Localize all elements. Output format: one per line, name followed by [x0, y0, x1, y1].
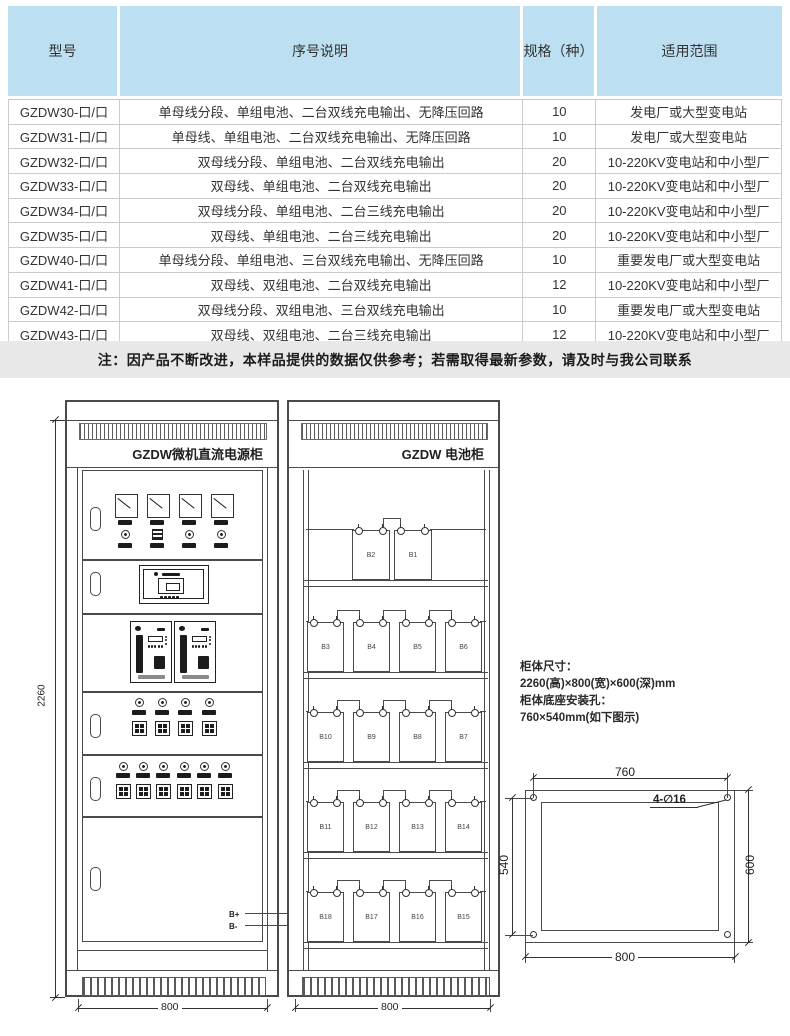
lamp-tag — [116, 773, 130, 778]
table-row: GZDW34-口/口双母线分段、单组电池、二台三线充电输出2010-220KV变… — [9, 199, 782, 224]
module-block — [198, 656, 209, 669]
breaker-dot — [221, 787, 225, 791]
monitor-button — [164, 596, 167, 599]
battery-terminal — [402, 709, 410, 717]
battery-shelf — [303, 672, 488, 679]
table-row: GZDW30-口/口单母线分段、单组电池、二台双线充电输出、无降压回路10发电厂… — [9, 100, 782, 125]
battery-shelf — [303, 580, 488, 587]
door-handle — [90, 507, 101, 531]
cabinet-line — [77, 950, 267, 951]
table-cell: 双母线、双组电池、二台双线充电输出 — [120, 273, 523, 297]
battery-terminal — [471, 709, 479, 717]
table-cell: GZDW35-口/口 — [9, 223, 120, 247]
meter-needle — [213, 498, 226, 509]
meter-needle — [149, 498, 162, 509]
breaker-dot — [164, 792, 168, 796]
breaker-dot — [144, 792, 148, 796]
table-cell: 重要发电厂或大型变电站 — [596, 248, 782, 272]
battery-cell: B1 — [394, 530, 432, 580]
breaker-dot — [159, 787, 163, 791]
lamp-tag — [182, 543, 196, 548]
monitor-bezel — [139, 565, 209, 604]
module-button — [192, 645, 194, 648]
cabinet-size-title: 柜体尺寸： — [520, 658, 578, 674]
battery-terminal — [421, 527, 429, 535]
table-cell: 重要发电厂或大型变电站 — [596, 298, 782, 322]
module-button — [154, 645, 156, 648]
indicator-lamp-icon — [158, 698, 167, 707]
battery-cell: B18 — [307, 892, 344, 942]
breaker-dot — [124, 792, 128, 796]
bridge-wire — [337, 790, 360, 799]
breaker-dot — [186, 729, 190, 733]
indicator-lamp-icon — [119, 762, 128, 771]
breaker-dot — [140, 729, 144, 733]
mounting-hole-icon — [724, 931, 731, 938]
breaker-dot — [180, 787, 184, 791]
cabinet-title: GZDW 电池柜 — [289, 440, 498, 468]
monitor-button — [176, 596, 179, 599]
battery-terminal — [333, 889, 341, 897]
witness-line — [525, 943, 526, 963]
rail-link-wire — [306, 529, 354, 530]
battery-cell: B5 — [399, 622, 436, 672]
module-dash — [201, 628, 209, 631]
analog-meter-icon — [211, 494, 234, 518]
rail-link-wire — [306, 801, 309, 802]
analog-meter-icon — [115, 494, 138, 518]
table-cell: 20 — [523, 199, 596, 223]
module-block — [154, 656, 165, 669]
table-cell: 20 — [523, 174, 596, 198]
note-text: 注：因产品不断改进，本样品提供的数据仅供参考；若需取得最新参数，请及时与我公司联… — [98, 350, 693, 370]
lamp-tag — [178, 710, 192, 715]
battery-terminal — [355, 527, 363, 535]
indicator-lamp-icon — [135, 698, 144, 707]
battery-terminal — [425, 799, 433, 807]
breaker-dot — [205, 729, 209, 733]
lamp-tag — [155, 710, 169, 715]
battery-cell: B3 — [307, 622, 344, 672]
breaker-dot — [205, 724, 209, 728]
bridge-wire — [429, 790, 452, 799]
battery-shelf — [303, 942, 488, 949]
battery-terminal — [425, 889, 433, 897]
rail-link-wire — [306, 711, 309, 712]
breaker-dot — [139, 792, 143, 796]
bridge-wire — [429, 880, 452, 889]
analog-meter-icon — [179, 494, 202, 518]
module-led — [209, 643, 211, 645]
table-cell: GZDW30-口/口 — [9, 100, 120, 124]
battery-cell: B7 — [445, 712, 482, 762]
cabinet-line — [289, 420, 498, 421]
battery-terminal — [425, 709, 433, 717]
breaker-icon — [218, 784, 233, 799]
table-cell: 双母线分段、单组电池、二台三线充电输出 — [120, 199, 523, 223]
breaker-dot — [185, 787, 189, 791]
battery-cell: B4 — [353, 622, 390, 672]
indicator-lamp-icon — [181, 698, 190, 707]
battery-terminal — [379, 889, 387, 897]
breaker-dot — [210, 724, 214, 728]
cabinet-title-text: GZDW微机直流电源柜 — [132, 444, 263, 463]
bridge-wire — [383, 518, 401, 527]
module-button — [151, 645, 153, 648]
rail-link-wire — [480, 891, 486, 892]
lamp-tag — [218, 773, 232, 778]
battery-terminal — [356, 619, 364, 627]
left-width-dimension-label: 800 — [158, 1001, 182, 1013]
module-led — [165, 639, 167, 641]
hole-spec-label: 4-∅16 — [650, 792, 689, 806]
rail-link-wire — [430, 529, 486, 530]
cabinet-line — [67, 420, 277, 421]
door-handle — [90, 572, 101, 596]
breaker-dot — [158, 729, 162, 733]
indicator-lamp-icon — [200, 762, 209, 771]
breaker-dot — [135, 724, 139, 728]
top-vent-grille-icon — [301, 423, 488, 440]
bridge-wire — [337, 700, 360, 709]
witness-line — [50, 997, 65, 998]
module-button — [198, 645, 200, 648]
module-led — [209, 636, 211, 638]
battery-cell: B14 — [445, 802, 482, 852]
monitor-button — [168, 596, 171, 599]
bridge-wire — [337, 610, 360, 619]
table-row: GZDW32-口/口双母线分段、单组电池、二台双线充电输出2010-220KV变… — [9, 149, 782, 174]
rail-link-wire — [480, 711, 486, 712]
meter-tag — [150, 520, 164, 525]
lamp-tag — [197, 773, 211, 778]
table-cell: 20 — [523, 149, 596, 173]
top-vent-grille-icon — [79, 423, 267, 440]
table-cell: 单母线分段、单组电池、二台双线充电输出、无降压回路 — [120, 100, 523, 124]
page: 型号序号说明规格（种）适用范围 GZDW30-口/口单母线分段、单组电池、二台双… — [0, 0, 790, 1036]
base-plan-inner-rect — [541, 802, 719, 931]
module-heatsink — [180, 635, 187, 673]
table-cell: 12 — [523, 273, 596, 297]
analog-meter-icon — [147, 494, 170, 518]
battery-cell: B8 — [399, 712, 436, 762]
right-width-dimension-label: 800 — [378, 1001, 402, 1013]
spec-table: 型号序号说明规格（种）适用范围 GZDW30-口/口单母线分段、单组电池、二台双… — [8, 6, 782, 347]
bridge-wire — [383, 610, 406, 619]
table-cell: 10 — [523, 100, 596, 124]
battery-terminal — [402, 799, 410, 807]
breaker-dot — [200, 792, 204, 796]
hole-height-label: 540 — [497, 852, 511, 878]
height-dimension-label: 2260 — [37, 681, 48, 709]
indicator-lamp-icon — [217, 530, 226, 539]
battery-cell: B13 — [399, 802, 436, 852]
breaker-icon — [136, 784, 151, 799]
battery-terminal — [397, 527, 405, 535]
indicator-lamp-icon — [221, 762, 230, 771]
breaker-dot — [226, 792, 230, 796]
table-cell: 10-220KV变电站和中小型厂 — [596, 174, 782, 198]
column-header: 型号 — [8, 6, 117, 96]
breaker-icon — [178, 721, 193, 736]
battery-terminal — [310, 709, 318, 717]
door-handle — [90, 714, 101, 738]
meter-needle — [181, 498, 194, 509]
rail-link-wire — [480, 621, 486, 622]
hole-width-label: 760 — [612, 765, 638, 779]
table-cell: GZDW40-口/口 — [9, 248, 120, 272]
rail-link-wire — [480, 801, 486, 802]
column-header: 适用范围 — [597, 6, 782, 96]
battery-terminal — [333, 799, 341, 807]
battery-cabinet: GZDW 电池柜 B2B1B3B4B5B6B10B9B8B7B11B12B13B… — [287, 400, 500, 997]
module-led — [209, 639, 211, 641]
module-display — [148, 636, 163, 642]
table-cell: 10 — [523, 125, 596, 149]
breaker-dot — [144, 787, 148, 791]
cabinet-title: GZDW微机直流电源柜 — [67, 440, 277, 468]
battery-terminal — [379, 709, 387, 717]
witness-line — [735, 942, 753, 943]
battery-terminal — [379, 799, 387, 807]
breaker-dot — [180, 792, 184, 796]
breaker-icon — [177, 784, 192, 799]
indicator-lamp-icon — [121, 530, 130, 539]
battery-terminal — [356, 889, 364, 897]
module-rail — [138, 675, 165, 679]
rail-link-wire — [306, 621, 309, 622]
battery-terminal — [310, 619, 318, 627]
breaker-dot — [119, 787, 123, 791]
breaker-dot — [163, 729, 167, 733]
charger-module — [174, 621, 216, 683]
bridge-wire — [383, 880, 406, 889]
module-button — [195, 645, 197, 648]
meter-tag — [118, 520, 132, 525]
table-cell: 10 — [523, 298, 596, 322]
bridge-wire — [337, 880, 360, 889]
battery-terminal — [448, 889, 456, 897]
battery-cell: B2 — [352, 530, 390, 580]
lamp-tag — [150, 543, 164, 548]
breaker-icon — [132, 721, 147, 736]
lamp-tag — [214, 543, 228, 548]
witness-line — [735, 790, 753, 791]
bottom-vent-grille-icon — [302, 977, 490, 996]
breaker-icon — [197, 784, 212, 799]
dimension-line-540 — [512, 798, 513, 935]
cabinet-size-value: 2260(高)×800(宽)×600(深)mm — [520, 675, 675, 691]
breaker-dot — [221, 792, 225, 796]
door-frame-line — [77, 467, 78, 970]
battery-terminal — [448, 709, 456, 717]
table-cell: GZDW41-口/口 — [9, 273, 120, 297]
table-row: GZDW40-口/口单母线分段、单组电池、三台双线充电输出、无降压回路10重要发… — [9, 248, 782, 273]
breaker-dot — [124, 787, 128, 791]
table-cell: 发电厂或大型变电站 — [596, 100, 782, 124]
battery-cell: B10 — [307, 712, 344, 762]
indicator-lamp-icon — [139, 762, 148, 771]
breaker-dot — [205, 792, 209, 796]
module-heatsink — [136, 635, 143, 673]
table-cell: 双母线分段、双组电池、三台双线充电输出 — [120, 298, 523, 322]
battery-cell: B15 — [445, 892, 482, 942]
battery-cell: B12 — [353, 802, 390, 852]
hour-counter-icon — [152, 529, 163, 540]
module-button — [202, 645, 204, 648]
height-dimension-line — [55, 420, 56, 998]
lamp-tag — [177, 773, 191, 778]
feeder-panel-2 — [82, 755, 263, 817]
battery-terminal — [471, 889, 479, 897]
indicator-lamp-icon — [185, 530, 194, 539]
breaker-dot — [139, 787, 143, 791]
monitor-button — [172, 596, 175, 599]
base-depth-label: 600 — [743, 852, 757, 878]
bridge-wire — [383, 700, 406, 709]
table-cell: 10 — [523, 248, 596, 272]
module-knob-icon — [135, 626, 141, 631]
bottom-vent-grille-icon — [82, 977, 266, 996]
meter-tag — [214, 520, 228, 525]
charger-panel — [82, 614, 263, 692]
lamp-tag — [202, 710, 216, 715]
monitor-screen-window — [166, 583, 180, 591]
battery-terminal — [425, 619, 433, 627]
table-cell: GZDW32-口/口 — [9, 149, 120, 173]
battery-terminal — [402, 889, 410, 897]
indicator-lamp-icon — [180, 762, 189, 771]
module-led — [165, 643, 167, 645]
table-row: GZDW35-口/口双母线、单组电池、二台三线充电输出2010-220KV变电站… — [9, 223, 782, 248]
lamp-tag — [156, 773, 170, 778]
breaker-icon — [156, 784, 171, 799]
breaker-dot — [181, 729, 185, 733]
dc-power-cabinet: GZDW微机直流电源柜 B+ B- — [65, 400, 279, 997]
breaker-dot — [119, 792, 123, 796]
battery-terminal — [471, 799, 479, 807]
table-cell: 双母线分段、单组电池、二台双线充电输出 — [120, 149, 523, 173]
meter-panel — [82, 470, 263, 560]
table-cell: 10-220KV变电站和中小型厂 — [596, 273, 782, 297]
module-button — [158, 645, 160, 648]
module-display — [192, 636, 207, 642]
table-cell: 单母线分段、单组电池、三台双线充电输出、无降压回路 — [120, 248, 523, 272]
battery-terminal — [310, 799, 318, 807]
battery-terminal — [356, 709, 364, 717]
breaker-dot — [164, 787, 168, 791]
breaker-dot — [226, 787, 230, 791]
table-row: GZDW41-口/口双母线、双组电池、二台双线充电输出1210-220KV变电站… — [9, 273, 782, 298]
breaker-icon — [116, 784, 131, 799]
battery-terminal — [471, 619, 479, 627]
indicator-lamp-icon — [159, 762, 168, 771]
right-wiring-rail — [484, 470, 490, 970]
bridge-wire — [429, 610, 452, 619]
battery-terminal — [448, 619, 456, 627]
door-handle — [90, 867, 101, 891]
table-row: GZDW31-口/口单母线、单组电池、二台双线充电输出、无降压回路10发电厂或大… — [9, 125, 782, 150]
battery-shelf — [303, 762, 488, 769]
table-row: GZDW42-口/口双母线分段、双组电池、三台双线充电输出10重要发电厂或大型变… — [9, 298, 782, 323]
cabinet-line — [289, 970, 498, 971]
battery-cell: B17 — [353, 892, 390, 942]
breaker-dot — [205, 787, 209, 791]
breaker-dot — [210, 729, 214, 733]
breaker-dot — [163, 724, 167, 728]
battery-terminal — [379, 619, 387, 627]
b-minus-label: B- — [229, 922, 237, 931]
breaker-dot — [159, 792, 163, 796]
module-button — [161, 645, 163, 648]
breaker-dot — [200, 787, 204, 791]
breaker-icon — [202, 721, 217, 736]
battery-terminal — [402, 619, 410, 627]
table-cell: 双母线、单组电池、二台双线充电输出 — [120, 174, 523, 198]
battery-cell: B6 — [445, 622, 482, 672]
cabinet-title-text: GZDW 电池柜 — [402, 444, 484, 463]
battery-terminal — [333, 619, 341, 627]
rail-link-wire — [306, 891, 309, 892]
b-plus-label: B+ — [229, 910, 239, 919]
lamp-tag — [118, 543, 132, 548]
table-cell: 单母线、单组电池、二台双线充电输出、无降压回路 — [120, 125, 523, 149]
table-cell: 发电厂或大型变电站 — [596, 125, 782, 149]
breaker-dot — [135, 729, 139, 733]
breaker-dot — [140, 724, 144, 728]
table-cell: 10-220KV变电站和中小型厂 — [596, 149, 782, 173]
table-cell: GZDW42-口/口 — [9, 298, 120, 322]
battery-cell: B11 — [307, 802, 344, 852]
table-row: GZDW33-口/口双母线、单组电池、二台双线充电输出2010-220KV变电站… — [9, 174, 782, 199]
lamp-tag — [136, 773, 150, 778]
bridge-wire — [429, 700, 452, 709]
table-cell: GZDW33-口/口 — [9, 174, 120, 198]
door-frame-line — [267, 467, 268, 970]
battery-shelf — [303, 852, 488, 859]
module-button — [148, 645, 150, 648]
bridge-wire — [383, 790, 406, 799]
column-header: 序号说明 — [120, 6, 520, 96]
module-dash — [157, 628, 165, 631]
spec-table-body: GZDW30-口/口单母线分段、单组电池、二台双线充电输出、无降压回路10发电厂… — [8, 99, 782, 347]
note-bar: 注：因产品不断改进，本样品提供的数据仅供参考；若需取得最新参数，请及时与我公司联… — [0, 341, 790, 378]
battery-terminal — [379, 527, 387, 535]
cabinet-line — [67, 970, 277, 971]
module-led — [165, 636, 167, 638]
battery-terminal — [448, 799, 456, 807]
monitor-led — [154, 572, 158, 576]
table-cell: 20 — [523, 223, 596, 247]
base-width-label: 800 — [612, 950, 638, 964]
column-header: 规格（种） — [523, 6, 594, 96]
monitor-button — [160, 596, 163, 599]
table-cell: 10-220KV变电站和中小型厂 — [596, 223, 782, 247]
module-knob-icon — [179, 626, 185, 631]
table-cell: 双母线、单组电池、二台三线充电输出 — [120, 223, 523, 247]
battery-cell: B9 — [353, 712, 390, 762]
table-cell: 10-220KV变电站和中小型厂 — [596, 199, 782, 223]
table-cell: GZDW34-口/口 — [9, 199, 120, 223]
breaker-icon — [155, 721, 170, 736]
battery-terminal — [310, 889, 318, 897]
battery-cell: B16 — [399, 892, 436, 942]
module-button — [205, 645, 207, 648]
witness-line — [734, 943, 735, 963]
indicator-lamp-icon — [205, 698, 214, 707]
meter-tag — [182, 520, 196, 525]
module-rail — [182, 675, 209, 679]
